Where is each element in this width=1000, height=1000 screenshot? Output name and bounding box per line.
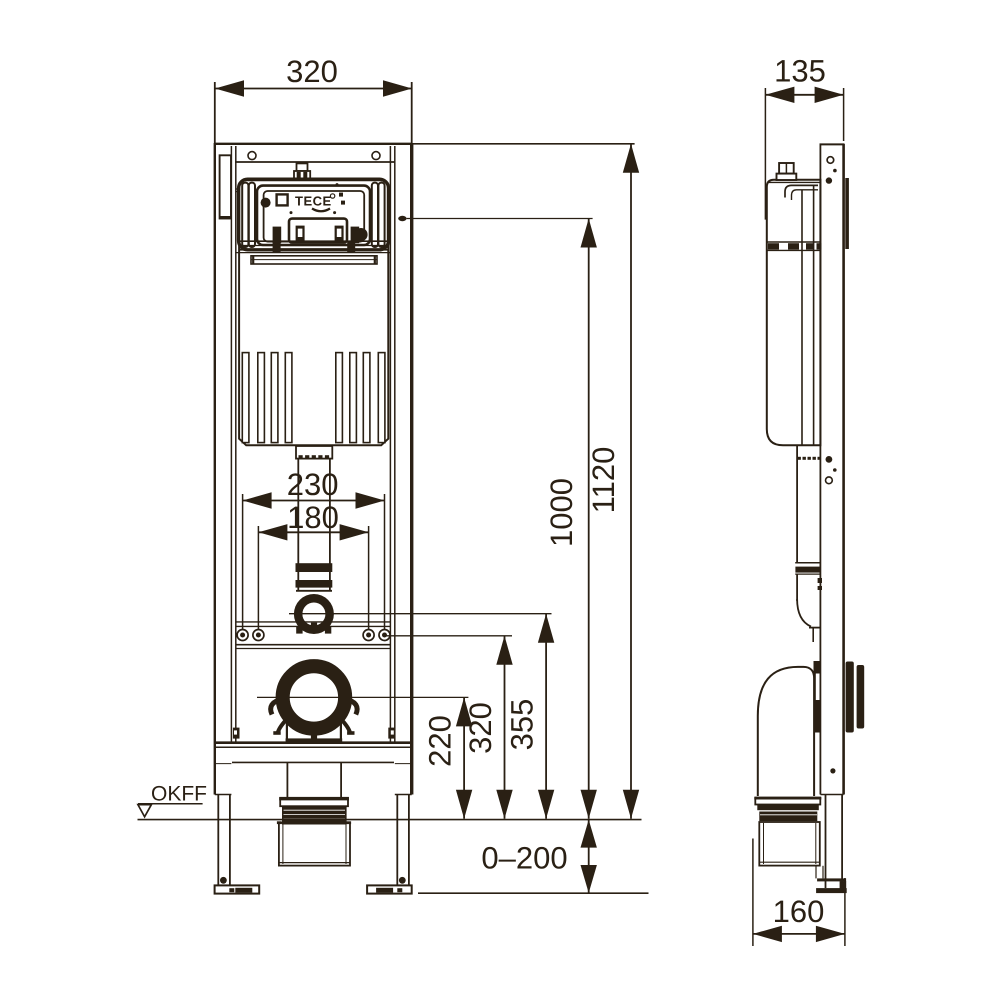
svg-text:220: 220	[423, 715, 458, 767]
svg-text:160: 160	[773, 894, 825, 929]
svg-text:OKFF: OKFF	[151, 783, 207, 806]
svg-text:TECE: TECE	[295, 194, 332, 209]
svg-text:135: 135	[774, 54, 826, 89]
svg-text:355: 355	[505, 699, 540, 751]
svg-text:1120: 1120	[586, 447, 621, 514]
svg-text:320: 320	[286, 54, 338, 89]
svg-text:320: 320	[463, 702, 498, 754]
svg-text:180: 180	[287, 500, 339, 535]
svg-text:0–200: 0–200	[481, 841, 567, 876]
svg-text:1000: 1000	[544, 478, 579, 547]
svg-text:230: 230	[287, 467, 339, 502]
